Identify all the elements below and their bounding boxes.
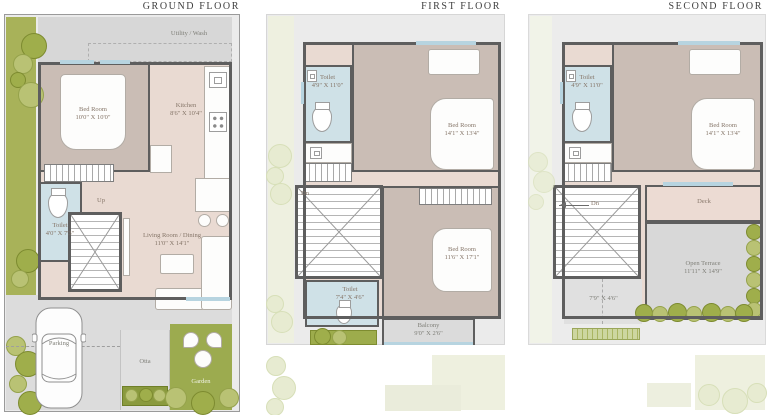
chair-icon <box>216 214 229 227</box>
room-name: Bed Room <box>448 246 476 253</box>
room-dims: 4'0" X 7'3" <box>46 230 75 237</box>
utility-label: Utility / Wash <box>134 30 244 38</box>
room-name: Balcony <box>418 322 440 329</box>
room-name: Bed Room <box>79 106 107 113</box>
stairs-dn-label: Dn <box>301 190 323 198</box>
tree-icon <box>270 183 292 205</box>
room-name: Toilet <box>52 222 67 229</box>
deck-label: Deck <box>645 198 763 206</box>
tree-icon <box>219 388 239 408</box>
second-floor-panel: Toilet 4'9" X 11'0" Bed Room 14'1" X 13'… <box>528 14 766 412</box>
bush-icon <box>746 224 762 240</box>
coffee-table-icon <box>160 254 194 274</box>
bedroom-top-label: Bed Room 14'1" X 13'4" <box>430 122 494 139</box>
room-name: Kitchen <box>176 102 197 109</box>
toilet-label: Toilet 4'0" X 7'3" <box>38 222 82 239</box>
toilet-top-label: Toilet 4'9" X 11'0" <box>303 74 352 91</box>
fridge-icon <box>150 145 172 173</box>
room-dims: 4'9" X 11'0" <box>312 82 344 89</box>
room-name: Open Terrace <box>686 260 721 267</box>
staircase <box>295 185 383 279</box>
sofa-icon <box>428 49 480 75</box>
room-dims: 7'9" X 4'6" <box>589 295 618 302</box>
tree-icon <box>266 398 284 415</box>
sofa-icon <box>689 49 741 75</box>
room-name: Toilet <box>342 286 357 293</box>
balcony-label: Balcony 9'0" X 2'6" <box>382 322 475 339</box>
living-label: Living Room / Dining 11'0" X 14'1" <box>132 232 212 249</box>
bush-icon <box>735 304 753 322</box>
bedroom-bottom-label: Bed Room 11'6" X 17'1" <box>432 246 492 263</box>
room-name: Up <box>97 197 105 204</box>
tree-icon <box>191 391 215 415</box>
tree-icon <box>11 270 29 288</box>
tree-icon <box>271 311 293 333</box>
bush-icon <box>332 330 347 345</box>
tree-icon <box>698 384 720 406</box>
chair-icon <box>198 214 211 227</box>
tree-icon <box>268 144 292 168</box>
washbasin-icon <box>310 147 322 159</box>
second-floor-title: SECOND FLOOR <box>669 1 764 12</box>
garden-table-icon <box>194 350 212 368</box>
bush-icon <box>746 240 762 256</box>
tree-icon <box>165 387 187 409</box>
kitchen-label: Kitchen 8'6" X 10'4" <box>156 102 216 119</box>
ground-floor-title: GROUND FLOOR <box>143 1 240 12</box>
tree-icon <box>747 383 767 403</box>
bush-icon <box>139 388 153 402</box>
tree-icon <box>272 376 296 400</box>
bush-icon <box>668 303 687 322</box>
room-name: Toilet <box>320 74 335 81</box>
room-dims: 10'0" X 10'0" <box>75 114 110 121</box>
terrace-label: Open Terrace 11'11" X 14'9" <box>653 260 753 277</box>
room-dims: 14'1" X 13'4" <box>444 130 479 137</box>
stairs-up-label: Up <box>88 197 114 205</box>
bush-icon <box>720 306 736 322</box>
bedroom-label: Bed Room 10'0" X 10'0" <box>60 106 126 123</box>
window-strip <box>663 182 733 186</box>
sink-icon <box>209 72 227 88</box>
dining-table-icon <box>195 178 232 212</box>
parking-label: Parking <box>32 340 86 348</box>
room-name: Garden <box>191 378 210 385</box>
bush-icon <box>153 389 166 402</box>
room-dims: 4'9" X 11'0" <box>571 82 603 89</box>
tv-unit-icon <box>123 218 130 276</box>
tree-icon <box>528 152 548 172</box>
bush-icon <box>125 389 138 402</box>
otta-label: Otta <box>120 358 170 366</box>
room-dims: 7'4" X 4'6" <box>336 294 365 301</box>
bush-icon <box>652 306 668 322</box>
room-name: Bed Room <box>448 122 476 129</box>
tree-icon <box>533 171 555 193</box>
tree-icon <box>528 194 544 210</box>
window-strip <box>100 60 130 64</box>
window-strip <box>186 297 230 301</box>
bedroom-label: Bed Room 14'1" X 13'4" <box>691 122 755 139</box>
paving-patch <box>647 383 691 407</box>
floor-plan-sheet: GROUND FLOOR FIRST FLOOR SECOND FLOOR Ut… <box>0 0 768 415</box>
room-dims: 11'6" X 17'1" <box>445 254 480 261</box>
room-name: Otta <box>139 358 150 365</box>
garden-chair-icon <box>183 332 199 348</box>
room-name: Utility / Wash <box>171 30 207 37</box>
car-icon <box>32 306 86 410</box>
stairs-dn-label: Dn <box>591 200 611 208</box>
washbasin-icon <box>569 147 581 159</box>
passage-label: 7'9" X 4'6" <box>576 295 631 303</box>
room-name: Bed Room <box>709 122 737 129</box>
window-strip <box>416 41 476 45</box>
toilet-label: Toilet 4'9" X 11'0" <box>562 74 612 91</box>
room-dims: 11'0" X 14'1" <box>155 240 190 247</box>
wardrobe-icon <box>562 163 612 182</box>
bush-icon <box>635 304 653 322</box>
window-strip <box>678 41 740 45</box>
tree-icon <box>722 388 748 414</box>
bush-icon <box>702 303 721 322</box>
garden-label: Garden <box>170 378 232 386</box>
ground-floor-panel: Utility / Wash Bed Room 10'0" X 10'0" Ki… <box>4 14 240 412</box>
bush-icon <box>686 306 702 322</box>
room-name: Deck <box>697 198 711 205</box>
paving-patch <box>385 385 461 411</box>
toilet-bottom-label: Toilet 7'4" X 4'6" <box>321 286 379 303</box>
down-arrow-icon <box>559 205 589 206</box>
first-floor-panel: Toilet 4'9" X 11'0" Bed Room 14'1" X 13'… <box>266 14 505 412</box>
room-name: Dn <box>301 190 309 197</box>
room-dims: 9'0" X 2'6" <box>414 330 443 337</box>
room-name: Parking <box>49 340 69 347</box>
tree-icon <box>9 375 27 393</box>
room-name: Dn <box>591 200 599 207</box>
room-dims: 11'11" X 14'9" <box>684 268 722 275</box>
window-strip <box>60 60 94 64</box>
room-name: Toilet <box>579 74 594 81</box>
room-dims: 8'6" X 10'4" <box>170 110 202 117</box>
bush-icon <box>314 328 331 345</box>
wardrobe-icon <box>44 164 114 182</box>
planter-strip <box>572 328 640 340</box>
tree-icon <box>13 54 33 74</box>
wardrobe-icon <box>419 188 492 205</box>
room-dims: 14'1" X 13'4" <box>705 130 740 137</box>
garden-chair-icon <box>206 332 222 348</box>
wardrobe-icon <box>303 163 352 182</box>
tree-icon <box>266 356 286 376</box>
tree-icon <box>18 82 44 108</box>
room-name: Living Room / Dining <box>143 232 201 239</box>
balcony-railing <box>384 342 473 345</box>
first-floor-title: FIRST FLOOR <box>421 1 501 12</box>
stairs-cross-icon <box>298 188 380 276</box>
